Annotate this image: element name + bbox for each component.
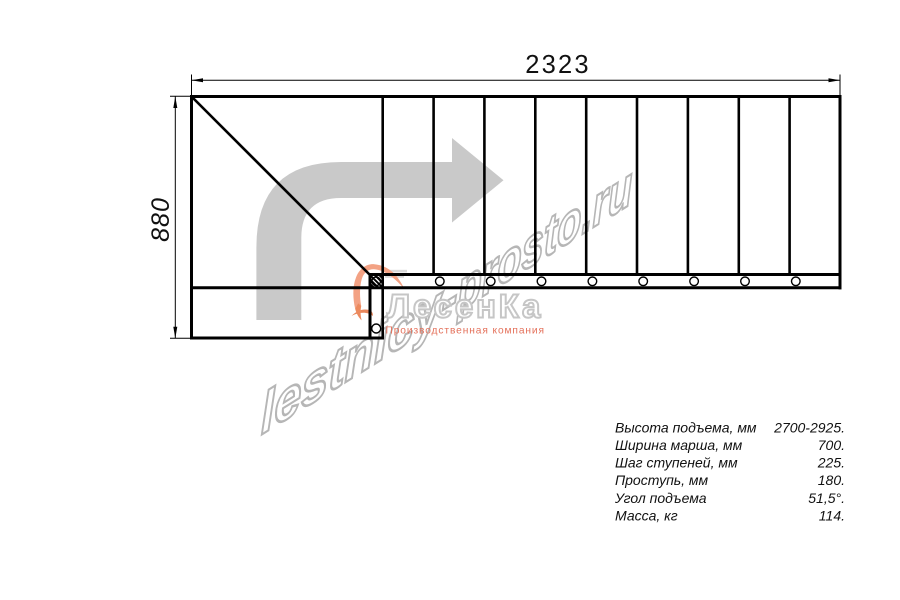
svg-text:Высота подъема, мм: Высота подъема, мм [615, 419, 757, 435]
svg-text:ЛесенКа: ЛесенКа [387, 288, 543, 325]
svg-text:2700-2925.: 2700-2925. [773, 419, 845, 435]
svg-text:Угол подъема: Угол подъема [614, 490, 707, 506]
svg-text:880: 880 [147, 197, 175, 242]
svg-text:Проступь, мм: Проступь, мм [615, 472, 709, 488]
svg-text:Ширина марша, мм: Ширина марша, мм [615, 437, 743, 453]
svg-text:2323: 2323 [525, 51, 591, 79]
svg-text:Производственная компания: Производственная компания [386, 326, 545, 337]
svg-text:180.: 180. [818, 472, 845, 488]
svg-text:114.: 114. [819, 508, 845, 524]
svg-text:225.: 225. [817, 455, 845, 471]
svg-text:Шаг ступеней, мм: Шаг ступеней, мм [615, 455, 738, 471]
svg-text:Масса, кг: Масса, кг [615, 508, 678, 524]
svg-text:51,5°.: 51,5°. [808, 490, 845, 506]
svg-text:700.: 700. [818, 437, 845, 453]
